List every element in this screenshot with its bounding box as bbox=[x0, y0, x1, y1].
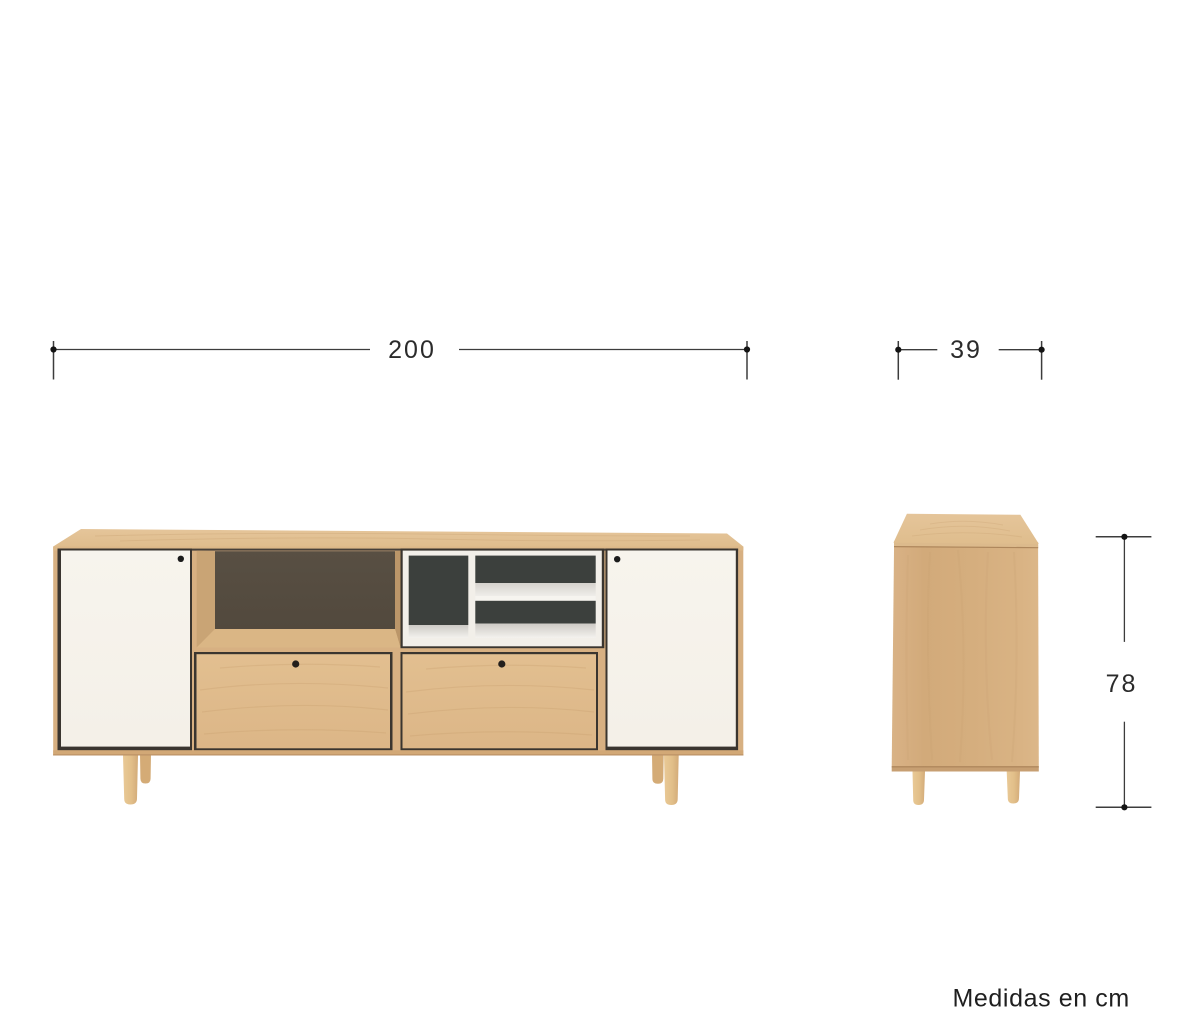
svg-text:39: 39 bbox=[950, 336, 982, 364]
svg-text:Medidas en cm: Medidas en cm bbox=[953, 985, 1130, 1013]
svg-text:78: 78 bbox=[1106, 670, 1138, 698]
svg-text:200: 200 bbox=[388, 336, 436, 364]
